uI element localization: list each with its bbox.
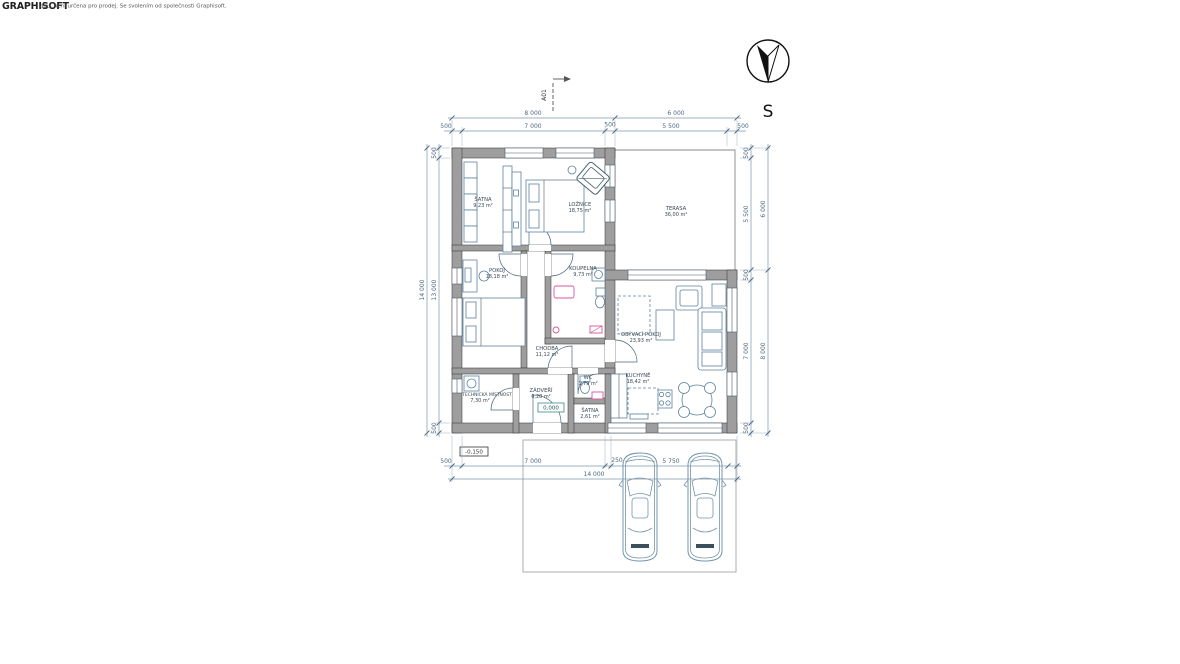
window [452, 298, 462, 336]
window [605, 200, 615, 222]
north-arrow-dark-half [757, 45, 768, 82]
room-label: KUCHYNĚ [626, 371, 651, 379]
car-1 [619, 453, 661, 561]
dim-value: 500 [743, 269, 750, 281]
room-area: 11,12 m² [536, 352, 559, 358]
room-label: ZÁDVEŘÍ [530, 386, 553, 394]
room-area: 9,23 m² [473, 203, 493, 209]
chair [705, 407, 716, 418]
north-arrow-light-half [768, 45, 779, 82]
section-marker-top: A01 [541, 76, 571, 112]
toilet [596, 296, 605, 308]
window [727, 372, 737, 396]
level-interior-value: 0,000 [543, 406, 559, 412]
room-area: 36,00 m² [665, 212, 688, 218]
dim-value: 7 000 [524, 458, 541, 465]
room-area: 6,28 m² [531, 394, 551, 400]
dim-value: 500 [440, 123, 452, 130]
room-area: 7,30 m² [470, 398, 490, 404]
dimension-left: 14 000 500 13 000 500 [419, 144, 442, 437]
dimension-top: 8 000 6 000 500 7 000 500 5 500 500 [440, 110, 749, 134]
drawing-canvas: GRAPHISOFT adu, není určena pro prodej. … [0, 0, 1180, 664]
dimension-right: 500 5 500 500 7 000 500 6 000 8 000 [743, 144, 771, 437]
compass: S [747, 40, 789, 122]
room-area: 1,79 m² [578, 381, 598, 387]
dim-value: 7 000 [524, 123, 541, 130]
dim-value: 7 000 [743, 342, 750, 359]
section-arrow-icon [564, 76, 571, 82]
furniture-technicka [464, 376, 479, 391]
room-label: ŠATNA [581, 407, 599, 414]
room-label: TECHNICKÁ MÍSTNOST [461, 391, 512, 398]
dim-value: 6 000 [760, 200, 767, 217]
dim-value: 8 000 [524, 110, 541, 117]
window [658, 423, 722, 433]
room-area: 23,93 m² [630, 338, 653, 344]
dim-value: 5 500 [743, 205, 750, 222]
window [556, 148, 594, 158]
sliding-glass-door [628, 270, 706, 280]
dim-value: 5 750 [662, 458, 679, 465]
floor-drain [553, 327, 559, 333]
dim-value: 6 000 [667, 110, 684, 117]
toilet-tank [596, 288, 605, 296]
dim-value: 250 [611, 457, 623, 464]
chair [679, 383, 690, 394]
room-area: 18,18 m² [486, 274, 509, 280]
washbasin [554, 286, 574, 298]
window [452, 379, 462, 393]
window [505, 148, 543, 158]
dim-value: 500 [743, 422, 750, 434]
car-2 [684, 453, 726, 561]
room-label: OBÝVACÍ POKOJ [621, 331, 661, 338]
window-sill [630, 414, 648, 419]
dim-value: 5 500 [662, 123, 679, 130]
radiator [592, 392, 603, 399]
window [608, 423, 646, 433]
dim-value: 500 [737, 123, 749, 130]
level-exterior-value: -0,150 [465, 450, 483, 456]
room-area: 9,73 m² [573, 272, 593, 278]
dim-value: 500 [604, 122, 616, 129]
room-area: 2,61 m² [580, 414, 600, 420]
shelf [712, 284, 726, 306]
chair [705, 383, 716, 394]
dim-value: 8 000 [760, 342, 767, 359]
watermark-text: adu, není určena pro prodej. Se svolením… [40, 3, 227, 10]
level-marker-exterior: -0,150 [460, 447, 488, 456]
dim-value: 500 [431, 422, 438, 434]
lamp [568, 166, 576, 174]
chair [679, 407, 690, 418]
room-label: LOŽNICE [569, 200, 592, 208]
dim-value: 500 [440, 458, 452, 465]
level-marker-interior: 0,000 [538, 403, 564, 412]
section-marker-top-label: A01 [541, 89, 548, 101]
dim-value: 500 [743, 147, 750, 159]
dim-value: 13 000 [431, 279, 438, 300]
dim-value: 14 000 [419, 279, 426, 300]
floor-plan-drawing: GRAPHISOFT adu, není určena pro prodej. … [0, 0, 1180, 664]
room-label: ŠATNA [474, 196, 492, 203]
window [452, 268, 462, 284]
dim-value: 500 [431, 147, 438, 159]
window [727, 288, 737, 332]
room-area: 18,42 m² [627, 379, 650, 385]
compass-label: S [763, 102, 774, 122]
watermark: GRAPHISOFT adu, není určena pro prodej. … [2, 1, 227, 12]
dim-value: 14 000 [584, 471, 605, 478]
room-area: 18,75 m² [569, 208, 592, 214]
